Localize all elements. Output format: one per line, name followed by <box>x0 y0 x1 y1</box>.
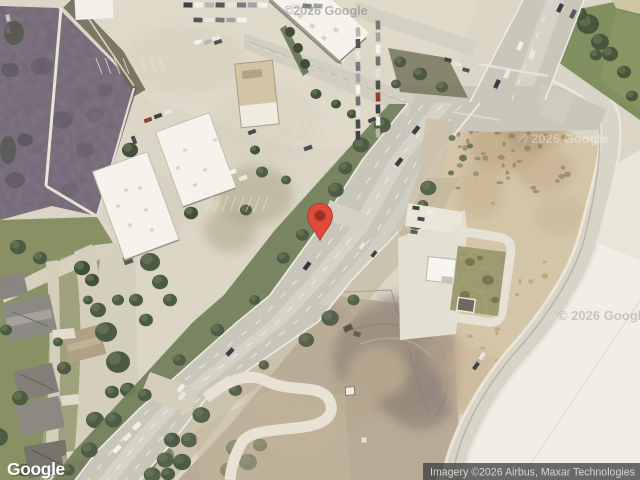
svg-text:Google: Google <box>7 459 66 479</box>
svg-text:Imagery ©2026 Airbus, Maxar Te: Imagery ©2026 Airbus, Maxar Technologies <box>430 467 635 479</box>
